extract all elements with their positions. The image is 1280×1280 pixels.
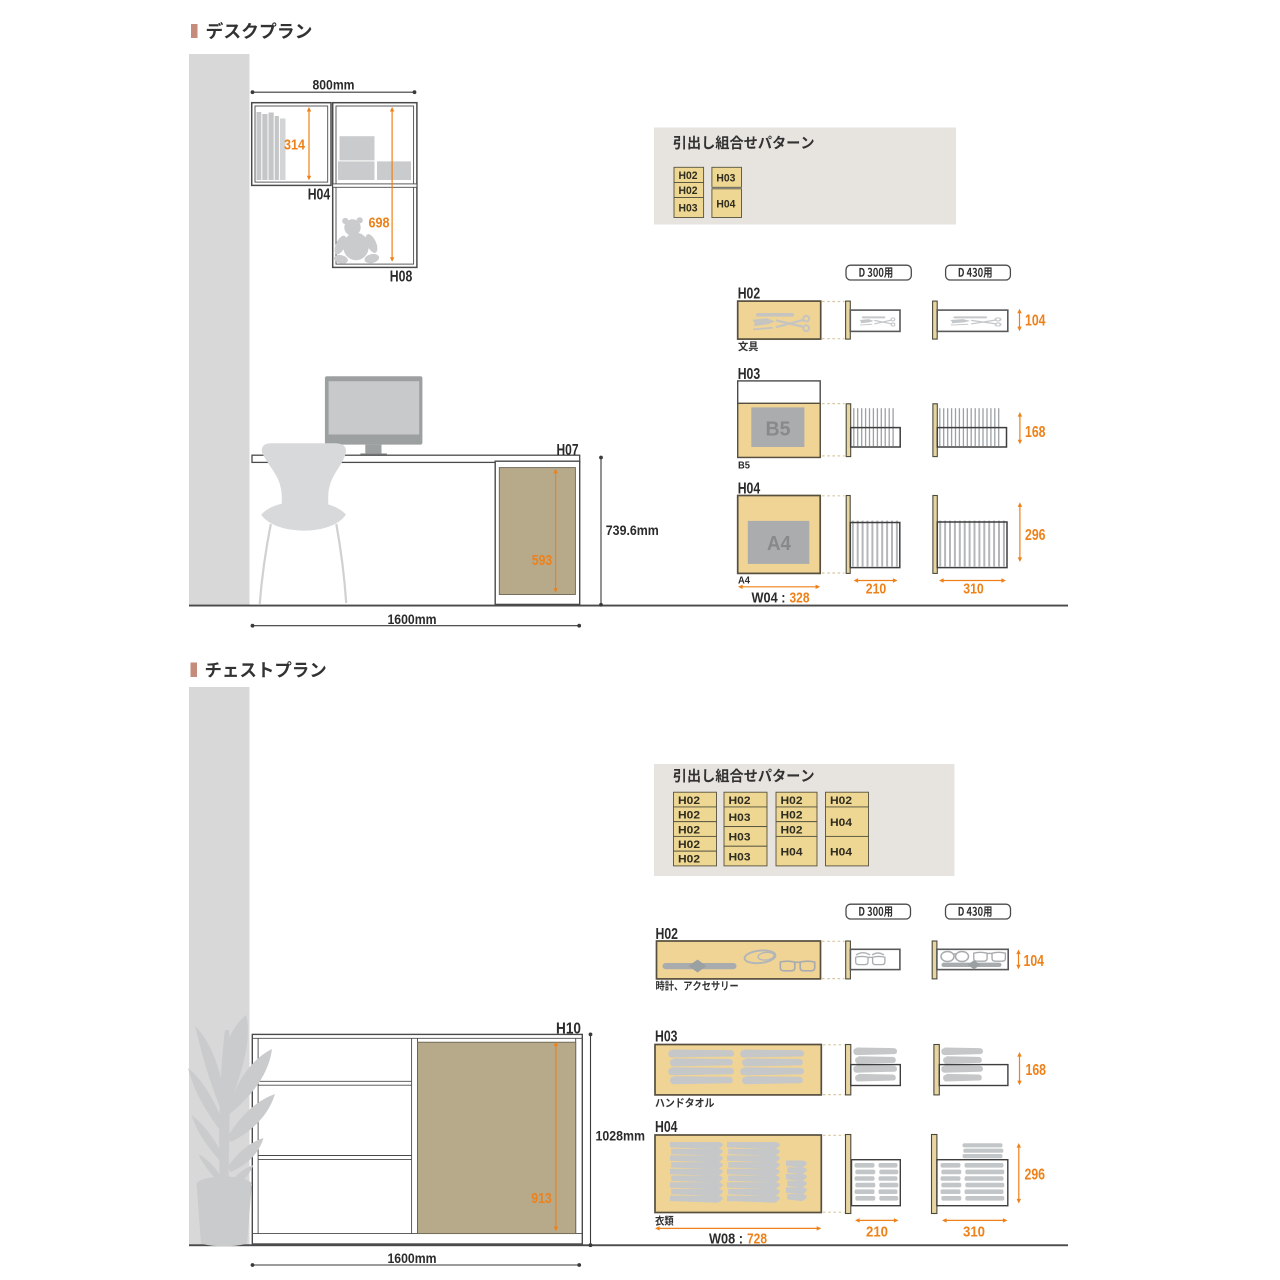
- svg-text:328: 328: [790, 590, 810, 607]
- svg-text:B5: B5: [766, 419, 791, 441]
- svg-text:H02: H02: [781, 824, 803, 836]
- svg-text:H02: H02: [678, 854, 700, 866]
- svg-text:210: 210: [866, 1223, 888, 1240]
- svg-text:H10: H10: [556, 1021, 581, 1038]
- svg-text:728: 728: [747, 1231, 767, 1248]
- svg-text:210: 210: [866, 581, 887, 598]
- svg-text:H03: H03: [716, 173, 735, 185]
- svg-text:296: 296: [1025, 1167, 1046, 1184]
- svg-text:H02: H02: [729, 795, 751, 807]
- svg-text:H02: H02: [781, 795, 803, 807]
- svg-text:739.6mm: 739.6mm: [606, 523, 659, 538]
- svg-text:H03: H03: [679, 203, 698, 215]
- svg-text:H02: H02: [678, 795, 700, 807]
- svg-text:H02: H02: [678, 810, 700, 822]
- svg-text:104: 104: [1024, 953, 1045, 970]
- svg-text:800mm: 800mm: [313, 77, 355, 93]
- svg-text:H04: H04: [781, 846, 804, 858]
- svg-text:H02: H02: [678, 839, 700, 851]
- svg-text:H03: H03: [729, 832, 751, 844]
- svg-text:H04: H04: [830, 846, 853, 858]
- svg-text:698: 698: [369, 214, 390, 231]
- svg-text:310: 310: [963, 1223, 985, 1240]
- svg-text:913: 913: [531, 1190, 552, 1207]
- svg-text:310: 310: [963, 581, 984, 598]
- svg-text:H04: H04: [830, 817, 853, 829]
- svg-text:1028mm: 1028mm: [596, 1129, 646, 1144]
- svg-text:1600mm: 1600mm: [388, 1251, 437, 1266]
- svg-text:A4: A4: [738, 575, 750, 587]
- svg-text:W04 :: W04 :: [752, 590, 786, 607]
- svg-text:A4: A4: [767, 533, 792, 555]
- svg-text:296: 296: [1025, 527, 1046, 544]
- svg-text:168: 168: [1025, 424, 1046, 441]
- svg-text:1600mm: 1600mm: [388, 612, 437, 627]
- svg-text:H03: H03: [729, 812, 751, 824]
- svg-text:168: 168: [1026, 1062, 1047, 1079]
- svg-text:H04: H04: [308, 187, 331, 204]
- svg-text:H08: H08: [390, 269, 413, 286]
- svg-text:593: 593: [532, 552, 553, 569]
- svg-text:H02: H02: [678, 824, 700, 836]
- svg-text:H02: H02: [679, 185, 698, 197]
- svg-text:H02: H02: [679, 170, 698, 182]
- svg-text:H03: H03: [729, 851, 751, 863]
- svg-text:H07: H07: [557, 442, 579, 459]
- svg-text:314: 314: [284, 136, 306, 153]
- svg-text:H04: H04: [655, 1119, 678, 1136]
- svg-text:104: 104: [1025, 313, 1046, 330]
- svg-text:H04: H04: [716, 198, 736, 210]
- svg-text:H02: H02: [830, 795, 852, 807]
- svg-text:B5: B5: [738, 459, 750, 471]
- svg-text:W08 :: W08 :: [709, 1231, 743, 1248]
- svg-text:H03: H03: [655, 1028, 678, 1045]
- svg-text:H02: H02: [738, 286, 761, 303]
- svg-text:H02: H02: [781, 810, 803, 822]
